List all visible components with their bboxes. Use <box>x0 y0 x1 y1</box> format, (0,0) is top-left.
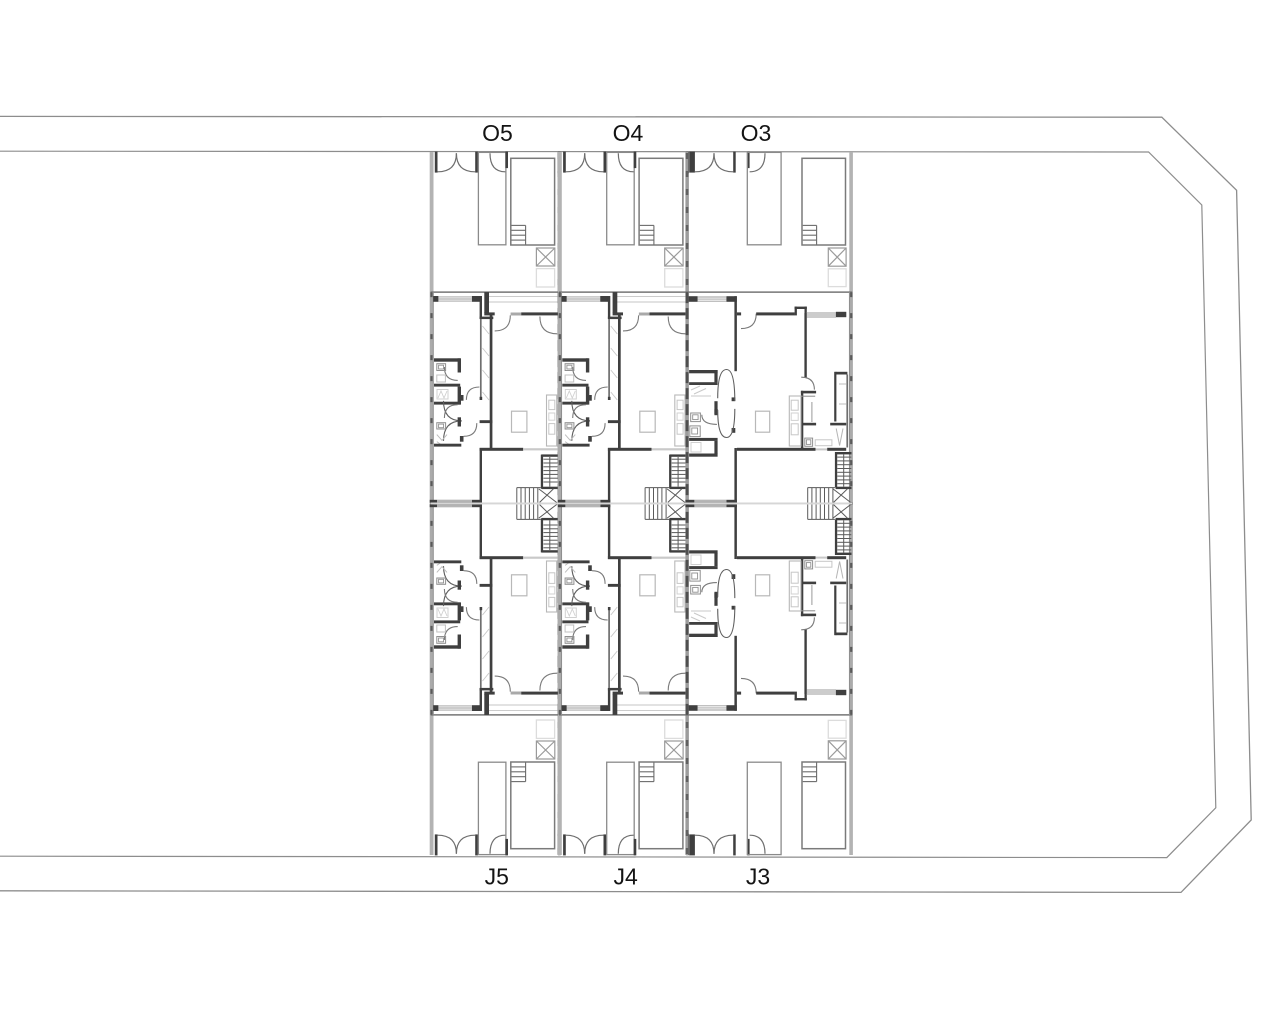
svg-text:O3: O3 <box>741 120 772 146</box>
svg-text:J4: J4 <box>613 864 638 890</box>
svg-text:O4: O4 <box>613 120 644 146</box>
svg-text:J5: J5 <box>485 864 509 890</box>
svg-text:J3: J3 <box>746 864 770 890</box>
svg-text:O5: O5 <box>482 120 513 146</box>
